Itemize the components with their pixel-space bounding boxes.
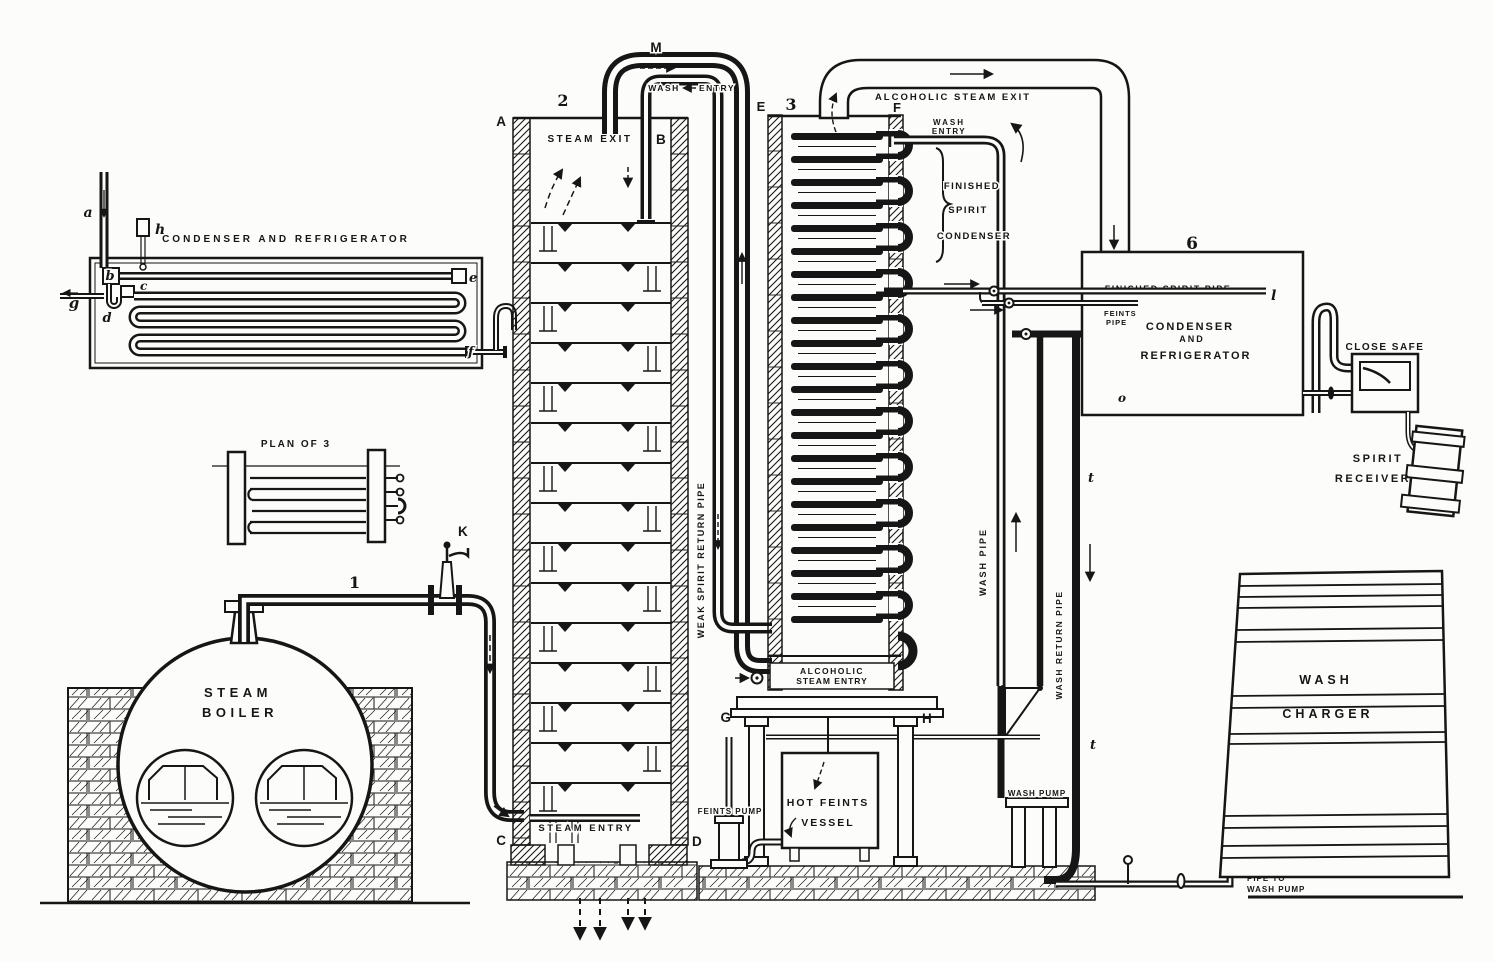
downcomer: [539, 466, 557, 491]
coil-tube: [791, 133, 883, 140]
wash-pump-plate: [1006, 798, 1068, 807]
steam-entry-label: STEAM ENTRY: [538, 823, 633, 834]
stand-and-vessel: G H HOT FEINTS VESSEL FEINTS PUMP WASH P…: [698, 697, 1068, 868]
left-condenser: CONDENSER AND REFRIGERATOR a h b c d e g…: [60, 172, 514, 368]
flange-left: [428, 585, 434, 615]
boiler-label-1: STEAM: [204, 685, 272, 700]
table-top: [737, 697, 937, 709]
wash-charger: WASH CHARGER: [1220, 571, 1449, 877]
bubble-cap: [620, 463, 636, 472]
union-e: [452, 269, 466, 283]
alc-entry-label-2: STEAM ENTRY: [796, 676, 868, 686]
tube-stub: [876, 453, 898, 459]
drain-pipes: [580, 898, 645, 938]
bubble-cap: [557, 223, 573, 232]
charger-body: [1220, 571, 1449, 877]
bracket-node-1: [1000, 685, 1006, 691]
bubble-cap: [620, 783, 636, 792]
gauge-h-stem: [141, 236, 145, 264]
tube-stub: [876, 269, 898, 275]
tube-stub: [876, 384, 898, 390]
bubble-cap: [620, 623, 636, 632]
coil-tube: [791, 248, 883, 255]
coil-tube: [791, 570, 883, 577]
column-right-base: [894, 857, 917, 866]
plan-u-bend: [398, 499, 405, 513]
bubble-cap: [557, 703, 573, 712]
bubble-cap: [557, 623, 573, 632]
valve-k-body: [440, 562, 454, 598]
bubble-cap: [557, 663, 573, 672]
arch-wash-label: WASH: [648, 83, 680, 93]
spirit-union-1-dot: [993, 290, 996, 293]
wash-transfer-pipe-core: [646, 80, 772, 628]
bubble-cap: [557, 463, 573, 472]
bubble-cap: [620, 383, 636, 392]
downcomer: [539, 706, 557, 731]
downcomer: [643, 426, 661, 451]
vessel-leg-right: [860, 848, 869, 861]
letter-h: h: [155, 222, 165, 238]
rectifier-tubes: [791, 133, 883, 623]
column-3-number: 3: [785, 95, 796, 114]
downcomer: [643, 506, 661, 531]
coil-tube: [791, 616, 883, 623]
letter-B: B: [656, 132, 666, 147]
coil-tube: [791, 455, 883, 462]
plan-of-3: PLAN OF 3: [212, 439, 405, 544]
feints-pump-flange: [715, 816, 743, 823]
bubble-cap: [557, 263, 573, 272]
close-safe-label: CLOSE SAFE: [1346, 342, 1425, 353]
tube-stub: [876, 177, 898, 183]
fsc-label-3: CONDENSER: [937, 231, 1011, 242]
return-header-valve-dot: [1025, 333, 1028, 336]
feints-pump-label: FEINTS PUMP: [698, 807, 763, 816]
plan-left-plate: [228, 452, 245, 544]
tube-stub: [876, 568, 898, 574]
feints-pump-body: [719, 823, 739, 862]
letter-d: d: [102, 311, 111, 326]
steam-exit-arrow-1: [545, 170, 562, 208]
coil-tube: [791, 524, 883, 531]
coil-tube: [791, 225, 883, 232]
plan-right-plate: [368, 450, 385, 542]
table-column-right: [898, 717, 913, 866]
letter-e: e: [469, 271, 477, 286]
steam-entry-port-dot: [755, 676, 758, 679]
serpentine-coil-core: [133, 296, 466, 352]
bubble-cap: [620, 743, 636, 752]
weak-spirit-return-label: WEAK SPIRIT RETURN PIPE: [696, 482, 706, 639]
coil-tube: [791, 340, 883, 347]
bubble-cap: [557, 303, 573, 312]
analyzer-foundation: [507, 862, 697, 900]
downcomer: [539, 546, 557, 571]
alc-entry-label-1: ALCOHOLIC: [800, 666, 864, 676]
bubble-cap: [620, 343, 636, 352]
bubble-cap: [557, 423, 573, 432]
tube-stub: [876, 246, 898, 252]
bubble-cap: [557, 343, 573, 352]
letter-D: D: [692, 834, 702, 849]
column-right-cap: [894, 717, 917, 726]
tube-stub: [876, 522, 898, 528]
bubble-cap: [620, 583, 636, 592]
flange-right: [456, 585, 462, 615]
downcomer: [643, 346, 661, 371]
column-2-number: 2: [557, 91, 568, 110]
letter-M: M: [650, 40, 661, 55]
condenser-6: 6 FINISHED SPIRIT PIPE FEINTS PIPE CONDE…: [1082, 234, 1303, 415]
steam-exit-label: STEAM EXIT: [547, 134, 632, 145]
rectifier-u-bends: [876, 129, 909, 621]
rectifier-foundation: [699, 866, 1095, 900]
pipe-1-number: 1: [349, 573, 360, 592]
safe-and-receiver: CLOSE SAFE SPIRIT RECEIVER: [1303, 307, 1467, 517]
left-condenser-title: CONDENSER AND REFRIGERATOR: [162, 234, 410, 245]
downcomer: [643, 586, 661, 611]
coil-tube: [791, 593, 883, 600]
tube-stub: [876, 338, 898, 344]
bubble-cap: [557, 583, 573, 592]
receiver-label-1: SPIRIT: [1353, 453, 1403, 465]
letter-g: g: [69, 294, 80, 312]
trap-d: [109, 284, 119, 306]
feints-pipe-label-1: FEINTS: [1104, 309, 1137, 318]
bubble-cap: [557, 543, 573, 552]
tube-stub: [876, 614, 898, 620]
downcomer: [643, 666, 661, 691]
close-safe-window: [1360, 362, 1410, 390]
vessel-leg-left: [790, 848, 799, 861]
tube-stub: [876, 591, 898, 597]
arch-entry-label: ENTRY: [699, 83, 735, 93]
coil-tube: [791, 202, 883, 209]
wash-pump-leg-left: [1012, 807, 1025, 867]
rectifier-column: ALCOHOLIC STEAM EXIT E 3 F WASH ENTRY FI…: [513, 60, 1129, 838]
coil-tube: [791, 317, 883, 324]
tube-stub: [876, 545, 898, 551]
pipe-to-wash-pump-label-2: WASH PUMP: [1247, 885, 1305, 894]
wash-entry-label-1: WASH: [933, 118, 965, 127]
fsc-label-2: SPIRIT: [948, 205, 988, 216]
charger-label-2: CHARGER: [1282, 707, 1373, 721]
vessel-label-1: HOT FEINTS: [787, 797, 869, 809]
downcomer: [643, 266, 661, 291]
letter-a: a: [83, 205, 92, 221]
plan-tubes: [250, 478, 366, 533]
condenser-6-title-3: REFRIGERATOR: [1141, 350, 1252, 362]
tube-stub: [876, 200, 898, 206]
charger-label-1: WASH: [1299, 673, 1353, 687]
analyzer-pier-mid-2: [620, 845, 636, 865]
wash-return-label: WASH RETURN PIPE: [1054, 590, 1064, 699]
table-molding: [731, 709, 943, 717]
tube-stub: [876, 154, 898, 160]
interconnect-pipes: M WASH ENTRY WEAK SPIRIT RETURN PIPE: [610, 40, 772, 666]
feints-pump-base: [711, 860, 747, 868]
bubble-cap: [620, 423, 636, 432]
union-c: [121, 286, 134, 297]
coil-tube: [791, 409, 883, 416]
bubble-cap: [620, 503, 636, 512]
wash-entry-label-2: ENTRY: [932, 127, 966, 136]
letter-A: A: [496, 114, 506, 129]
plan-nozzles: [385, 478, 398, 520]
tube-stub: [876, 223, 898, 229]
letter-H: H: [922, 711, 932, 726]
letter-E: E: [757, 99, 766, 114]
wash-pump-label: WASH PUMP: [1008, 789, 1066, 798]
plan-title: PLAN OF 3: [261, 439, 331, 450]
pipe-bracket: [1005, 688, 1040, 737]
pump-line-valve-2: [1178, 874, 1185, 888]
letter-l: l: [1271, 288, 1276, 304]
coil-tube: [791, 294, 883, 301]
tube-stub: [876, 315, 898, 321]
condenser-6-number: 6: [1186, 234, 1198, 254]
feints-pipe-label-2: PIPE: [1106, 318, 1127, 327]
coil-tube: [791, 432, 883, 439]
wash-pipe-label: WASH PIPE: [978, 528, 988, 596]
bubble-cap: [620, 543, 636, 552]
analyzer-pier-right: [649, 845, 687, 865]
coffey-still-diagram: STEAM BOILER 1 K CONDENS: [0, 0, 1494, 962]
letter-F: F: [893, 100, 901, 115]
letter-c: c: [140, 279, 148, 293]
letter-C: C: [496, 833, 506, 848]
pump-line-valve-1: [1124, 856, 1132, 864]
letter-b: b: [105, 269, 114, 284]
tube-stub: [876, 407, 898, 413]
coil-tube: [791, 501, 883, 508]
coil-tube: [791, 156, 883, 163]
gauge-h-foot: [140, 264, 146, 270]
downcomer: [539, 626, 557, 651]
bubble-cap: [557, 743, 573, 752]
coil-tube: [791, 478, 883, 485]
fsc-label-1: FINISHED: [944, 181, 1000, 192]
bubble-cap: [620, 663, 636, 672]
coil-tube: [791, 271, 883, 278]
alcoholic-steam-down-pipe: [610, 60, 772, 666]
tube-stub: [876, 361, 898, 367]
valve-k-knob: [444, 542, 451, 549]
coil-tube: [791, 363, 883, 370]
rectifier-left-wall: [768, 115, 782, 690]
analyzer-pier-mid-1: [558, 845, 574, 865]
downcomer: [539, 226, 557, 251]
steam-exit-arrow-2: [563, 178, 580, 215]
bubble-cap: [620, 223, 636, 232]
analyzer-pier-left: [511, 845, 545, 865]
coil-tube: [791, 179, 883, 186]
analyzer-left-wall: [513, 118, 530, 845]
condenser-6-title-1: CONDENSER: [1146, 321, 1234, 333]
condenser-6-title-2: AND: [1179, 334, 1205, 344]
safe-feed-pipe-core: [1316, 307, 1354, 413]
vessel-label-2: VESSEL: [801, 817, 854, 829]
bubble-cap: [620, 303, 636, 312]
outlet-crook: [496, 306, 514, 350]
valve-k-lever: [449, 548, 468, 556]
letter-t-upper: t: [1088, 471, 1094, 486]
downcomer: [539, 386, 557, 411]
bubble-cap: [557, 383, 573, 392]
analyzer-right-wall: [671, 118, 688, 845]
tube-stub: [876, 430, 898, 436]
letter-t-lower: t: [1090, 738, 1096, 753]
letter-G: G: [720, 710, 731, 725]
wash-transfer-pipe: [646, 80, 772, 628]
bubble-cap: [557, 783, 573, 792]
safe-pipe-valve: [1328, 387, 1334, 400]
receiver-label-2: RECEIVER: [1335, 473, 1411, 485]
wash-entry-curve-arrow: [1012, 124, 1023, 162]
gauge-h: [137, 219, 149, 236]
downcomer: [539, 786, 557, 811]
tube-stub: [876, 476, 898, 482]
plan-left-bends: [248, 489, 252, 533]
valve-k-label: K: [458, 524, 468, 539]
still-diagram-page: STEAM BOILER 1 K CONDENS: [0, 0, 1494, 962]
downcomer: [539, 306, 557, 331]
letter-o: o: [1118, 391, 1126, 405]
downcomer: [643, 746, 661, 771]
steam-boiler: STEAM BOILER: [118, 601, 372, 892]
bubble-cap: [557, 503, 573, 512]
bubble-cap: [620, 263, 636, 272]
bubble-cap: [620, 703, 636, 712]
spirit-union-2-dot: [1008, 302, 1011, 305]
wash-pump-leg-right: [1043, 807, 1056, 867]
coil-tube: [791, 386, 883, 393]
coil-tube: [791, 547, 883, 554]
tube-stub: [876, 499, 898, 505]
column-left-cap: [745, 717, 768, 726]
boiler-label-2: BOILER: [202, 705, 278, 720]
outlet-end: [503, 346, 507, 358]
analyzer-trays: [531, 223, 671, 811]
bracket-node-2: [1037, 685, 1043, 691]
